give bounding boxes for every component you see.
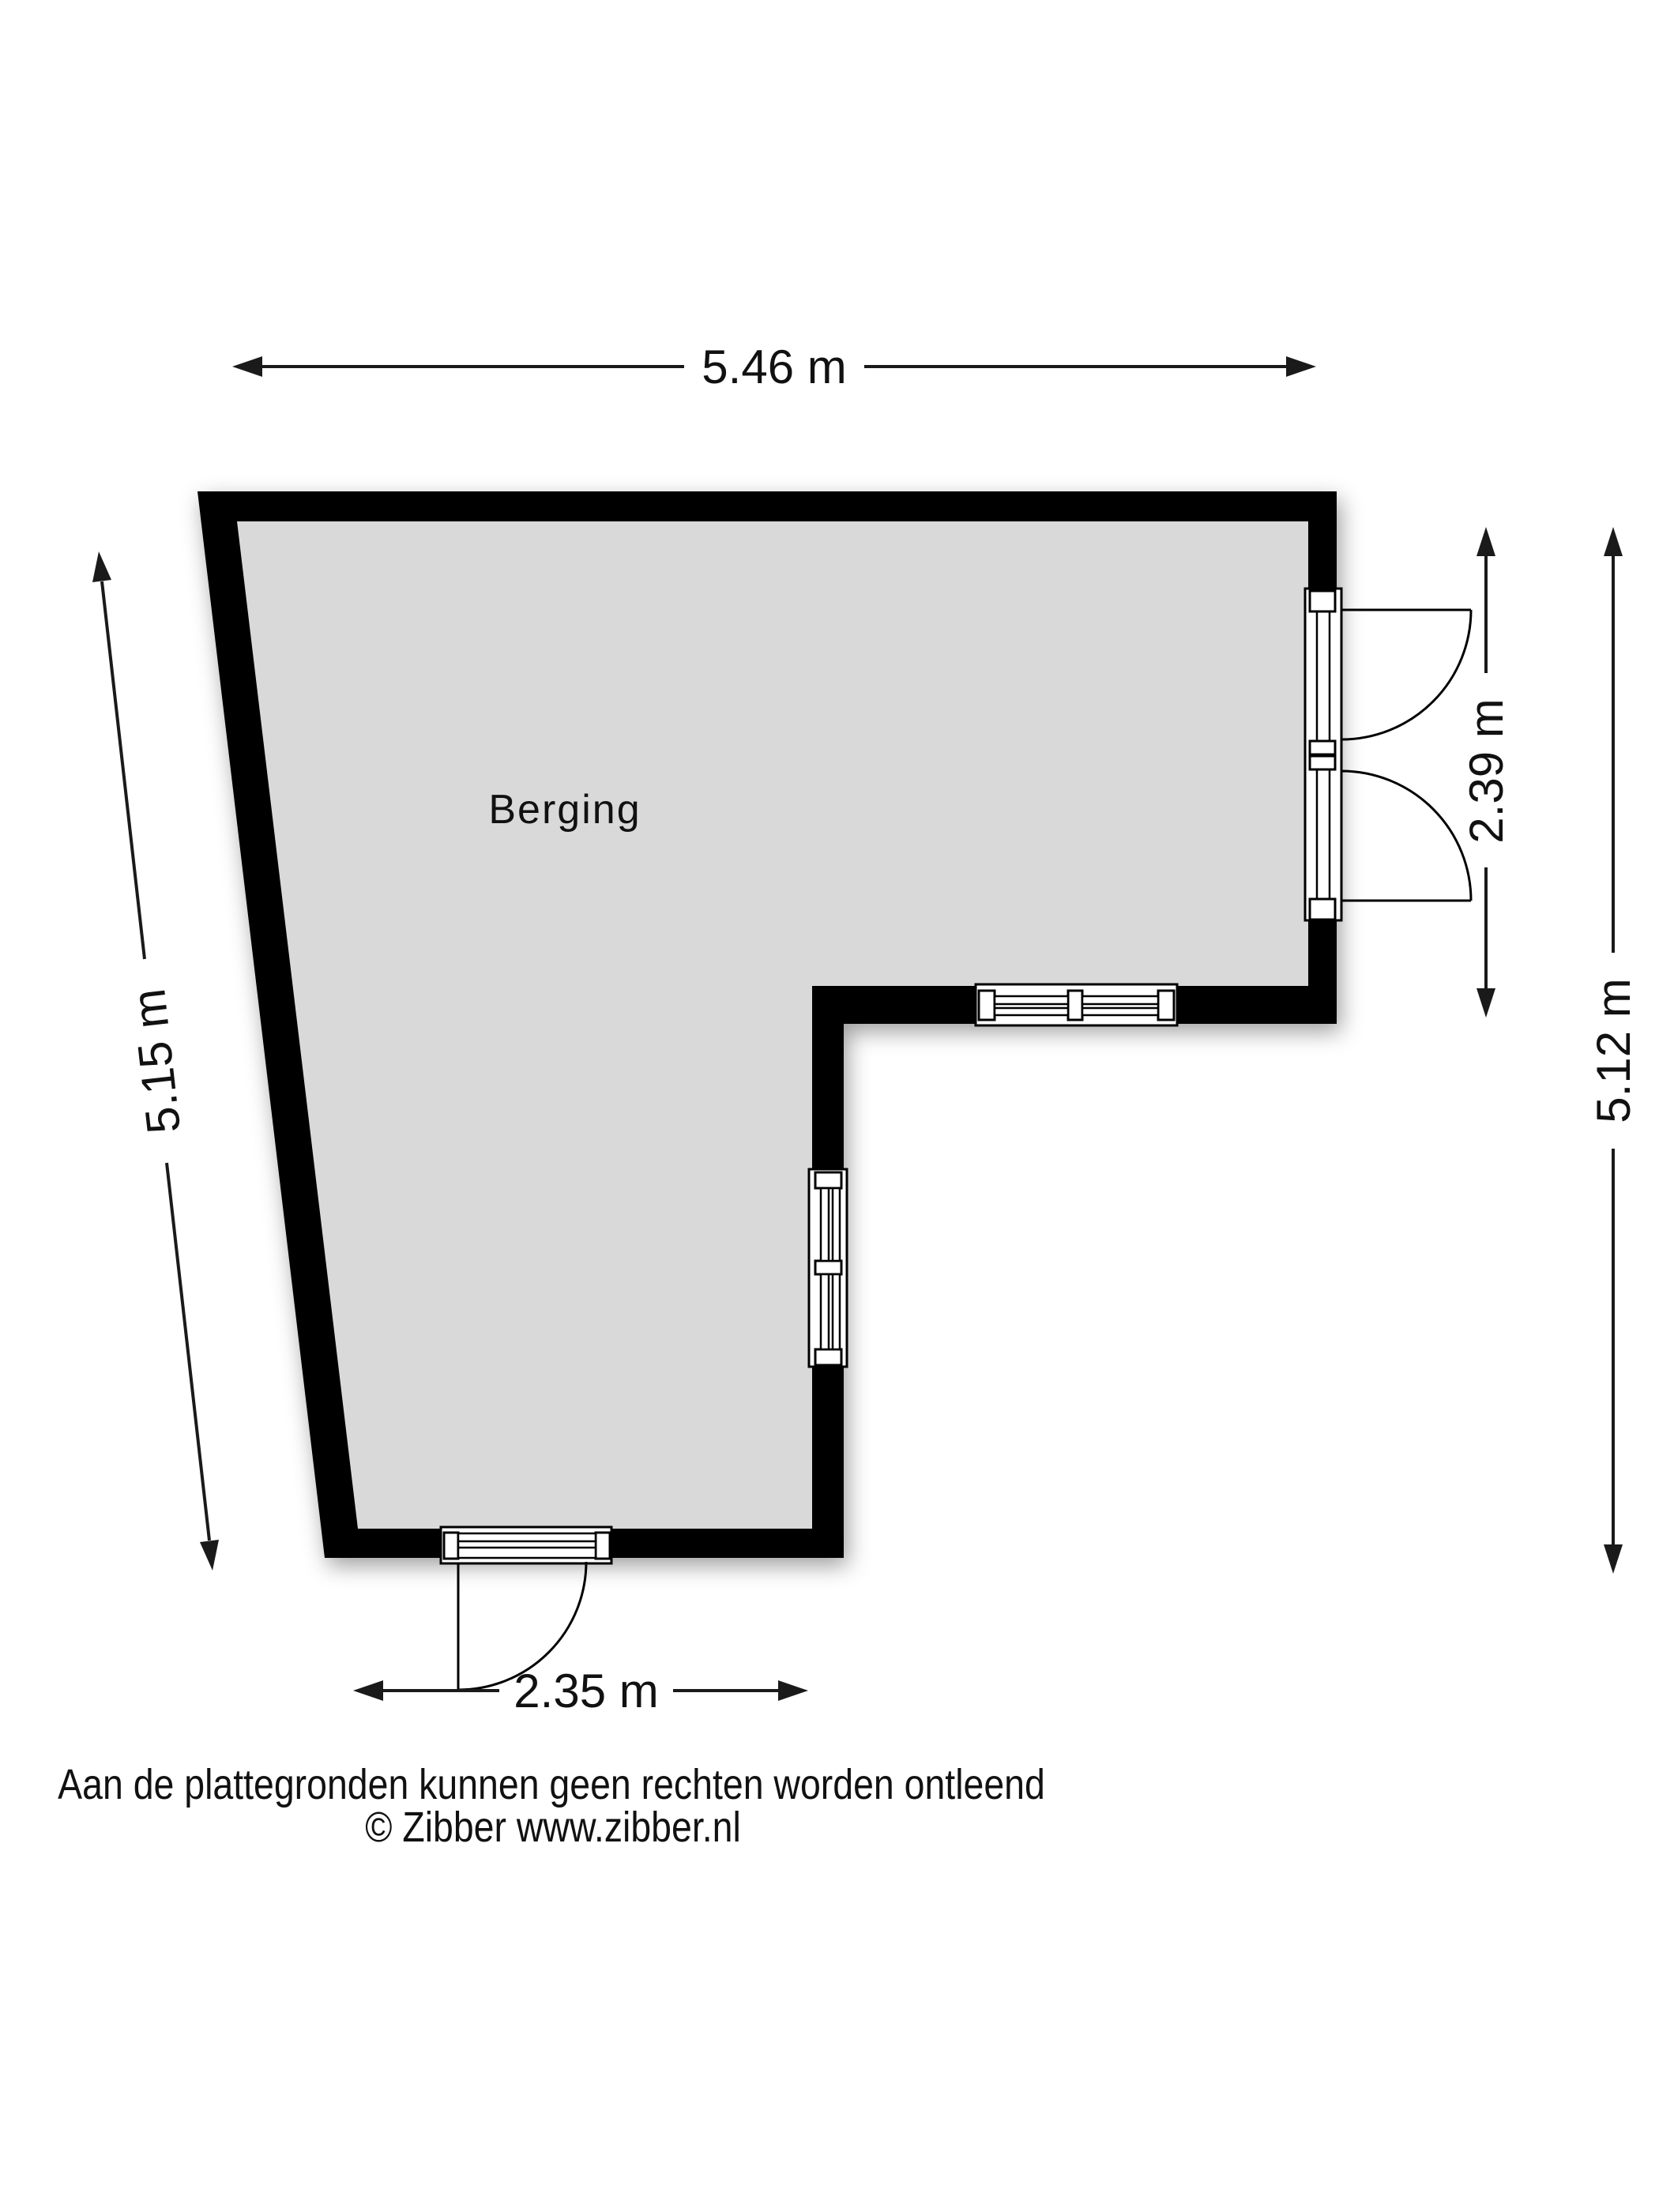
frame-block	[815, 1261, 841, 1274]
dimension-label-bottom: 2.35 m	[513, 1665, 658, 1717]
arrowhead-down-icon	[1604, 1544, 1623, 1574]
window-glass	[821, 1274, 840, 1349]
door-swing-arc	[1341, 610, 1471, 739]
floorplan: Berging	[197, 491, 1471, 1690]
frame-block	[1310, 756, 1335, 769]
floorplan-canvas: Berging 5.46 m 5.15 m 2.39 m 5.12 m 2.35…	[0, 0, 1659, 2212]
frame-block	[1158, 991, 1174, 1020]
dimension-label-left: 5.15 m	[122, 986, 190, 1136]
room-label: Berging	[488, 787, 641, 833]
dimension-line	[102, 581, 145, 959]
frame-block	[815, 1172, 841, 1188]
frame-block	[1068, 991, 1082, 1020]
window-glass	[995, 996, 1068, 1015]
window-leg-east	[809, 1169, 847, 1367]
disclaimer-text: Aan de plattegronden kunnen geen rechten…	[58, 1760, 1045, 1808]
frame-block	[1310, 899, 1335, 920]
dimension-label-right-inner: 2.39 m	[1460, 698, 1513, 843]
dimension-left: 5.15 m	[92, 551, 219, 1571]
dimension-bottom: 2.35 m	[353, 1665, 808, 1717]
footer: Aan de plattegronden kunnen geen rechten…	[58, 1760, 1045, 1851]
dimension-label-top: 5.46 m	[702, 340, 846, 393]
window-south	[976, 984, 1177, 1025]
window-glass	[1082, 996, 1158, 1015]
frame-block	[1310, 741, 1335, 754]
dimension-label-right-outer: 5.12 m	[1587, 978, 1640, 1123]
frame-block	[444, 1533, 458, 1559]
door-threshold	[458, 1533, 596, 1558]
arrowhead-left-icon	[232, 356, 262, 377]
arrowhead-right-icon	[1286, 356, 1316, 377]
dimension-right-inner: 2.39 m	[1460, 527, 1513, 1018]
door-swing-arc	[1341, 771, 1471, 901]
arrowhead-up-icon	[92, 551, 111, 582]
arrowhead-right-icon	[778, 1680, 808, 1701]
frame-block	[815, 1349, 841, 1365]
dimension-right-outer: 5.12 m	[1587, 527, 1640, 1574]
arrowhead-down-icon	[200, 1540, 219, 1571]
dimension-top: 5.46 m	[232, 340, 1316, 393]
arrowhead-left-icon	[353, 1680, 383, 1701]
arrowhead-down-icon	[1477, 988, 1495, 1018]
copyright-text: © Zibber www.zibber.nl	[365, 1803, 741, 1851]
double-door-east	[1305, 589, 1471, 920]
window-glass	[821, 1188, 840, 1261]
dimension-line	[167, 1163, 209, 1540]
frame-block	[979, 991, 995, 1020]
frame-block	[596, 1533, 610, 1559]
arrowhead-up-icon	[1604, 527, 1623, 556]
arrowhead-up-icon	[1477, 527, 1495, 556]
frame-block	[1310, 591, 1335, 611]
